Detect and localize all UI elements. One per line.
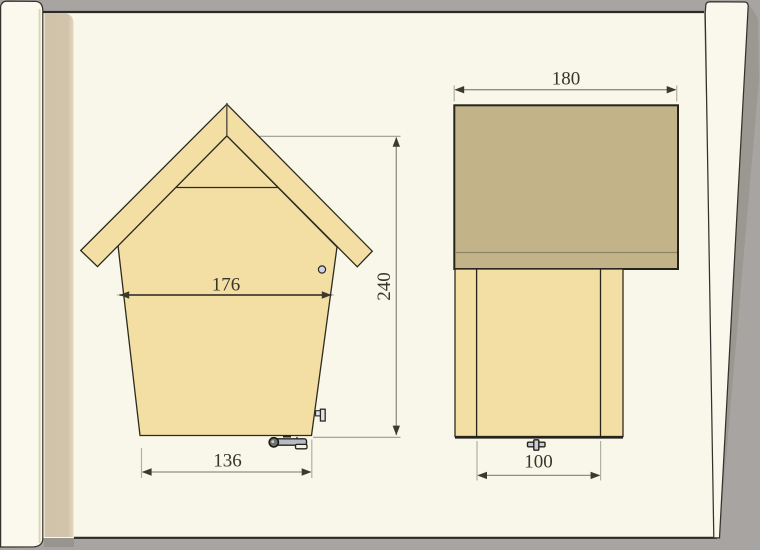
svg-text:136: 136: [213, 451, 242, 472]
svg-text:100: 100: [524, 452, 553, 473]
svg-text:180: 180: [552, 69, 581, 90]
svg-text:176: 176: [212, 275, 241, 296]
svg-text:240: 240: [374, 272, 395, 301]
